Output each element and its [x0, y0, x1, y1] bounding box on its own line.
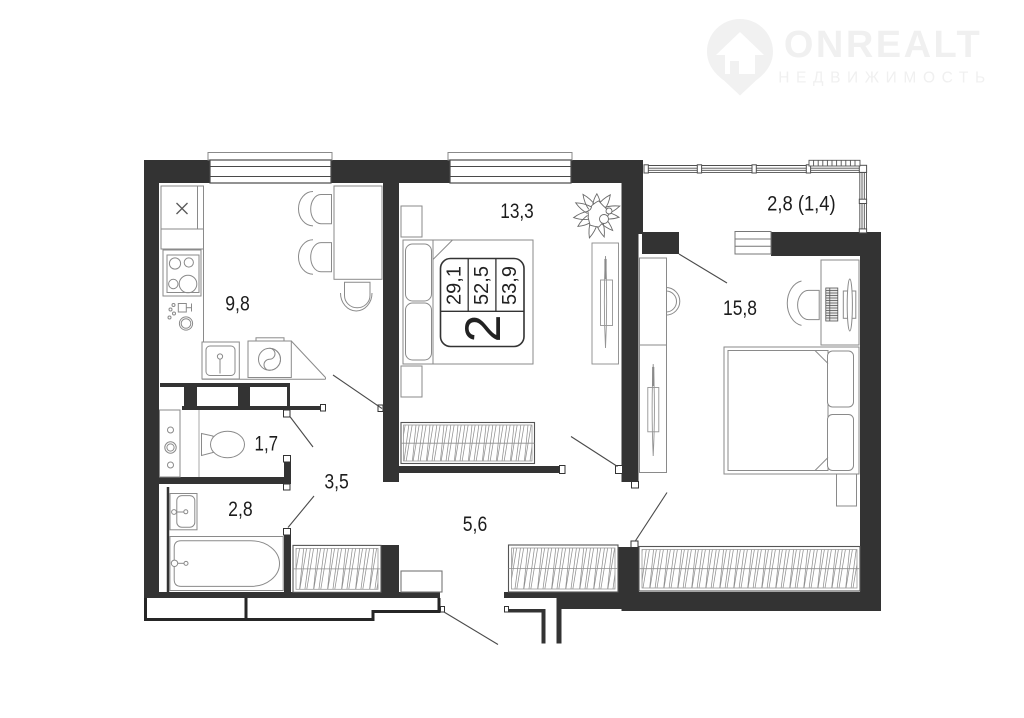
- svg-text:НЕДВИЖИМОСТЬ: НЕДВИЖИМОСТЬ: [778, 70, 991, 87]
- svg-text:1,7: 1,7: [255, 432, 279, 456]
- svg-text:2: 2: [455, 315, 511, 343]
- svg-text:5,6: 5,6: [463, 512, 488, 536]
- svg-text:53,9: 53,9: [499, 266, 521, 305]
- svg-text:52,5: 52,5: [471, 266, 493, 305]
- svg-text:2,8 (1,4): 2,8 (1,4): [767, 192, 836, 216]
- svg-text:15,8: 15,8: [723, 296, 757, 320]
- svg-text:3,5: 3,5: [324, 470, 349, 494]
- svg-text:ONREALT: ONREALT: [784, 24, 982, 66]
- svg-text:13,3: 13,3: [500, 199, 534, 223]
- svg-text:9,8: 9,8: [225, 292, 250, 316]
- svg-text:29,1: 29,1: [444, 266, 466, 305]
- svg-text:2,8: 2,8: [228, 497, 253, 521]
